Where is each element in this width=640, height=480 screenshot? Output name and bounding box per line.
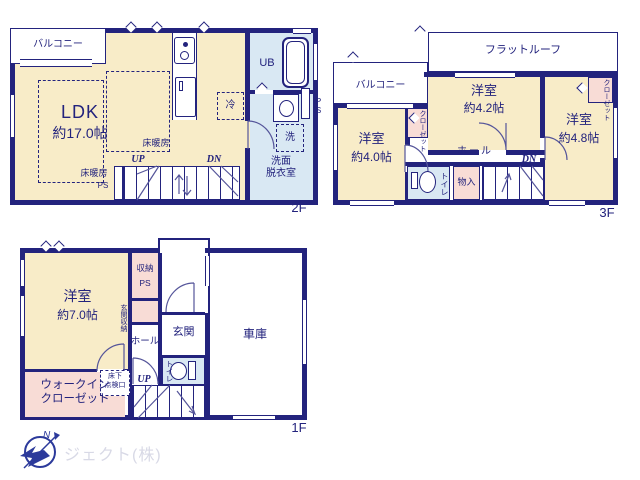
basin [279, 100, 294, 117]
wall [128, 322, 158, 325]
stairs-lines [132, 385, 205, 418]
entrance-storage-label: 玄関収納 [115, 298, 127, 338]
counter [301, 88, 310, 119]
ldk-label: LDK [30, 102, 130, 122]
wic-label-1: ウォークイン [25, 379, 125, 392]
unit-bath-label: UB [250, 57, 284, 69]
compass-icon: N [14, 426, 66, 478]
ldk-size-label: 約17.0帖 [30, 126, 130, 142]
ps-1f-label: PS [132, 279, 158, 289]
wall [245, 33, 250, 121]
balcony-2f-label: バルコニー [10, 39, 106, 50]
burner [180, 51, 189, 60]
kitchen-sink-icon [175, 77, 196, 117]
bedroom-c-label: 洋室 [338, 132, 405, 147]
window [302, 300, 307, 364]
dn-label: DN [516, 154, 542, 165]
wall [205, 248, 307, 253]
hall-3f-label: ホール [450, 146, 500, 157]
ps-label: PS [92, 182, 114, 191]
closet-right-label: クローゼット [591, 79, 611, 101]
vent-mark [347, 51, 358, 62]
window [455, 72, 515, 78]
up-label: UP [133, 374, 155, 385]
wic-label-2: クローゼット [25, 393, 125, 406]
floor-label-3f: 3F [591, 206, 623, 221]
washbasin-icon [273, 94, 299, 122]
company-name: ジェクト(株) [64, 441, 162, 465]
window [205, 256, 210, 286]
closet-left-label: クローゼット [409, 110, 427, 136]
garage-opening [233, 415, 275, 420]
bedroom-b-size: 約4.8帖 [545, 132, 613, 145]
toilet-tank [411, 172, 418, 189]
flat-roof-label: フラットルーフ [428, 44, 618, 56]
washroom-label-2: 脱衣室 [250, 168, 312, 179]
window [313, 44, 318, 80]
hall-1f-label: ホール [130, 337, 160, 348]
vent-mark [414, 25, 425, 36]
garage-label: 車庫 [215, 328, 295, 341]
stove-icon [174, 37, 195, 64]
entrance-storage-1f [132, 301, 158, 322]
floorplan-canvas: バルコニー 冷 洗 [0, 0, 640, 480]
stairs-lines [123, 166, 240, 200]
toilet-3f-label: トイレ [438, 169, 448, 198]
floor-label-2f: 2F [283, 201, 315, 216]
bedroom-a-size: 約4.2帖 [428, 102, 540, 115]
fridge-label: 冷 [217, 100, 244, 111]
ps-shaft [114, 166, 123, 200]
storage-3f-label: 物入 [453, 177, 480, 187]
dn-label: DN [202, 154, 226, 165]
bathtub-inner [286, 41, 305, 84]
washer-label: 洗 [276, 132, 304, 143]
toilet-icon [419, 171, 436, 193]
floor-label-1f: 1F [283, 421, 315, 436]
window [347, 103, 413, 109]
toilet-1f-label: トイレ [163, 359, 173, 384]
floor-heating-label: 床暖房 [74, 168, 114, 178]
stairs-lines [482, 166, 545, 200]
storage-1f-label: 収納 [132, 264, 158, 274]
window [20, 59, 92, 67]
up-label: UP [126, 154, 150, 165]
wall [540, 72, 545, 138]
window [613, 108, 618, 158]
toilet-tank [188, 361, 196, 380]
storage-1f [132, 253, 158, 298]
bedroom-c-size: 約4.0帖 [338, 151, 405, 164]
burner [183, 42, 188, 47]
door-arc [248, 121, 274, 149]
tap [179, 81, 183, 91]
window [10, 95, 15, 137]
threshold-line [160, 312, 205, 314]
balcony-3f-label: バルコニー [333, 80, 428, 91]
window [293, 28, 311, 34]
compass-north-label: N [43, 430, 51, 441]
window [20, 260, 25, 286]
door-arc [166, 283, 194, 312]
window [350, 200, 394, 206]
entrance-label: 玄関 [162, 326, 205, 338]
ps-label: PS [312, 93, 322, 119]
floor-heating-label: 床暖房 [136, 138, 176, 148]
window [549, 200, 585, 206]
door-arc [97, 344, 124, 371]
bedroom-a-label: 洋室 [428, 84, 540, 99]
washroom-label-1: 洗面 [250, 156, 312, 167]
